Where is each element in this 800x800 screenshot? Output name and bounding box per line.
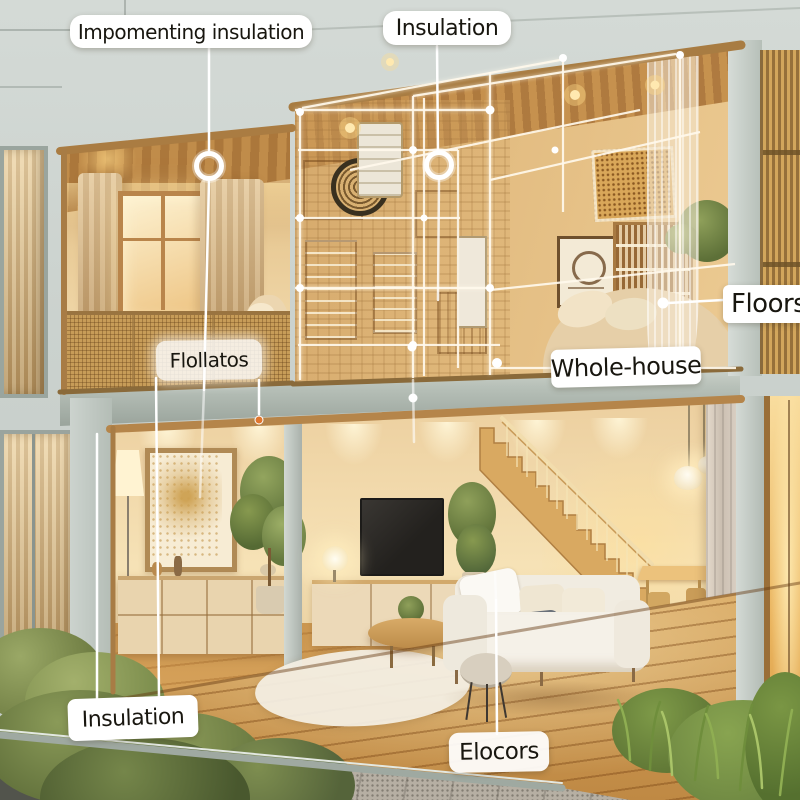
grass-blades [618, 700, 792, 795]
label-floors: Floors [723, 285, 800, 323]
accent-orange-dot [255, 416, 263, 424]
label-implementing-insulation: Impomenting insulation [70, 15, 312, 48]
annotation-overlay [0, 0, 800, 800]
annotated-house-cross-section: Impomenting insulation Insulation Floors… [0, 0, 800, 800]
label-elocors: Elocors [449, 731, 550, 773]
label-insulation-bottom: Insulation [67, 695, 198, 742]
label-insulation-top: Insulation [383, 11, 511, 45]
label-whole-house: Whole-house [551, 346, 702, 388]
label-flollatos: Flollatos [156, 339, 263, 381]
